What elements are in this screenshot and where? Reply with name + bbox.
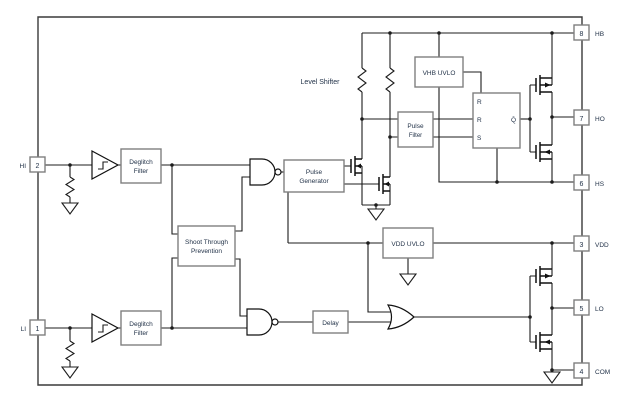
svg-text:Pulse: Pulse	[407, 123, 424, 130]
block-pulse-filter: Pulse Filter	[398, 112, 433, 147]
resistor-level-shifter-1	[358, 68, 366, 92]
svg-text:1: 1	[36, 326, 40, 333]
resistor-level-shifter-2	[386, 68, 394, 92]
level-shifter-label: Level Shifter	[301, 79, 341, 86]
svg-text:HO: HO	[595, 116, 605, 123]
block-deglitch-filter-hi: Deglitch Filter	[121, 149, 161, 183]
svg-text:HB: HB	[595, 31, 604, 38]
svg-text:7: 7	[580, 116, 584, 123]
nand-gate-low-side	[247, 309, 278, 335]
mosfet-ho-pmos	[536, 75, 552, 95]
block-delay: Delay	[313, 311, 348, 333]
ground-icon	[62, 367, 78, 378]
pin-3-vdd: 3 VDD	[574, 236, 609, 251]
block-vdd-uvlo: VDD UVLO	[383, 228, 433, 258]
svg-text:8: 8	[580, 31, 584, 38]
svg-text:VDD UVLO: VDD UVLO	[391, 241, 424, 248]
svg-text:2: 2	[36, 163, 40, 170]
pin-6-hs: 6 HS	[574, 175, 605, 190]
ground-icon	[400, 274, 416, 285]
diagram-canvas: Deglitch Filter Deglitch Filter Shoot Th…	[0, 0, 622, 401]
svg-text:Q̄: Q̄	[511, 116, 516, 124]
schmitt-buffer-hi	[92, 151, 118, 179]
ground-icon	[368, 209, 384, 220]
svg-text:Filter: Filter	[134, 330, 149, 337]
block-diagram: Deglitch Filter Deglitch Filter Shoot Th…	[0, 0, 622, 401]
mosfet-lo-pmos	[536, 266, 552, 286]
mosfet-level-shifter-1	[351, 156, 362, 176]
svg-text:Filter: Filter	[134, 168, 149, 175]
svg-text:LO: LO	[595, 306, 604, 313]
block-pulse-generator: Pulse Generator	[284, 160, 344, 192]
svg-text:COM: COM	[595, 369, 610, 376]
svg-text:4: 4	[580, 369, 584, 376]
pin-4-com: 4 COM	[574, 363, 610, 378]
or-gate-low-side	[388, 305, 414, 329]
svg-text:Deglitch: Deglitch	[129, 159, 153, 166]
pin-8-hb: 8 HB	[574, 25, 604, 40]
svg-text:5: 5	[580, 306, 584, 313]
svg-text:Delay: Delay	[322, 320, 339, 327]
svg-text:R: R	[477, 117, 482, 124]
block-shoot-through-prevention: Shoot Through Prevention	[178, 226, 235, 266]
ic-boundary	[38, 17, 582, 385]
pin-7-ho: 7 HO	[574, 110, 605, 125]
mosfet-ho-nmos	[536, 142, 552, 162]
block-deglitch-filter-li: Deglitch Filter	[121, 311, 161, 345]
svg-text:6: 6	[580, 181, 584, 188]
svg-text:HI: HI	[20, 163, 27, 170]
block-vhb-uvlo: VHB UVLO	[415, 57, 463, 87]
ground-icon	[544, 372, 560, 383]
pin-2-hi: 2 HI	[20, 157, 46, 172]
mosfet-lo-nmos	[536, 332, 552, 352]
svg-text:Pulse: Pulse	[306, 169, 323, 176]
resistor-hi-pulldown	[66, 177, 74, 197]
ground-symbols	[62, 203, 560, 383]
svg-text:3: 3	[580, 242, 584, 249]
svg-text:S: S	[477, 135, 482, 142]
svg-text:R: R	[477, 99, 482, 106]
svg-text:Shoot Through: Shoot Through	[185, 239, 228, 246]
pin-1-li: 1 LI	[21, 320, 45, 335]
svg-text:LI: LI	[21, 326, 27, 333]
ground-icon	[62, 203, 78, 214]
resistor-li-pulldown	[66, 341, 74, 361]
svg-text:HS: HS	[595, 181, 605, 188]
svg-text:Prevention: Prevention	[191, 248, 222, 255]
pin-5-lo: 5 LO	[574, 300, 604, 315]
block-rs-latch: R R S Q̄	[473, 93, 520, 148]
svg-text:VHB UVLO: VHB UVLO	[423, 70, 456, 77]
svg-text:Generator: Generator	[299, 178, 329, 185]
mosfet-level-shifter-2	[379, 174, 390, 194]
svg-text:Deglitch: Deglitch	[129, 321, 153, 328]
svg-text:VDD: VDD	[595, 242, 609, 249]
schmitt-buffer-li	[92, 314, 118, 342]
svg-text:Filter: Filter	[409, 133, 422, 139]
nand-gate-high-side	[250, 159, 281, 185]
